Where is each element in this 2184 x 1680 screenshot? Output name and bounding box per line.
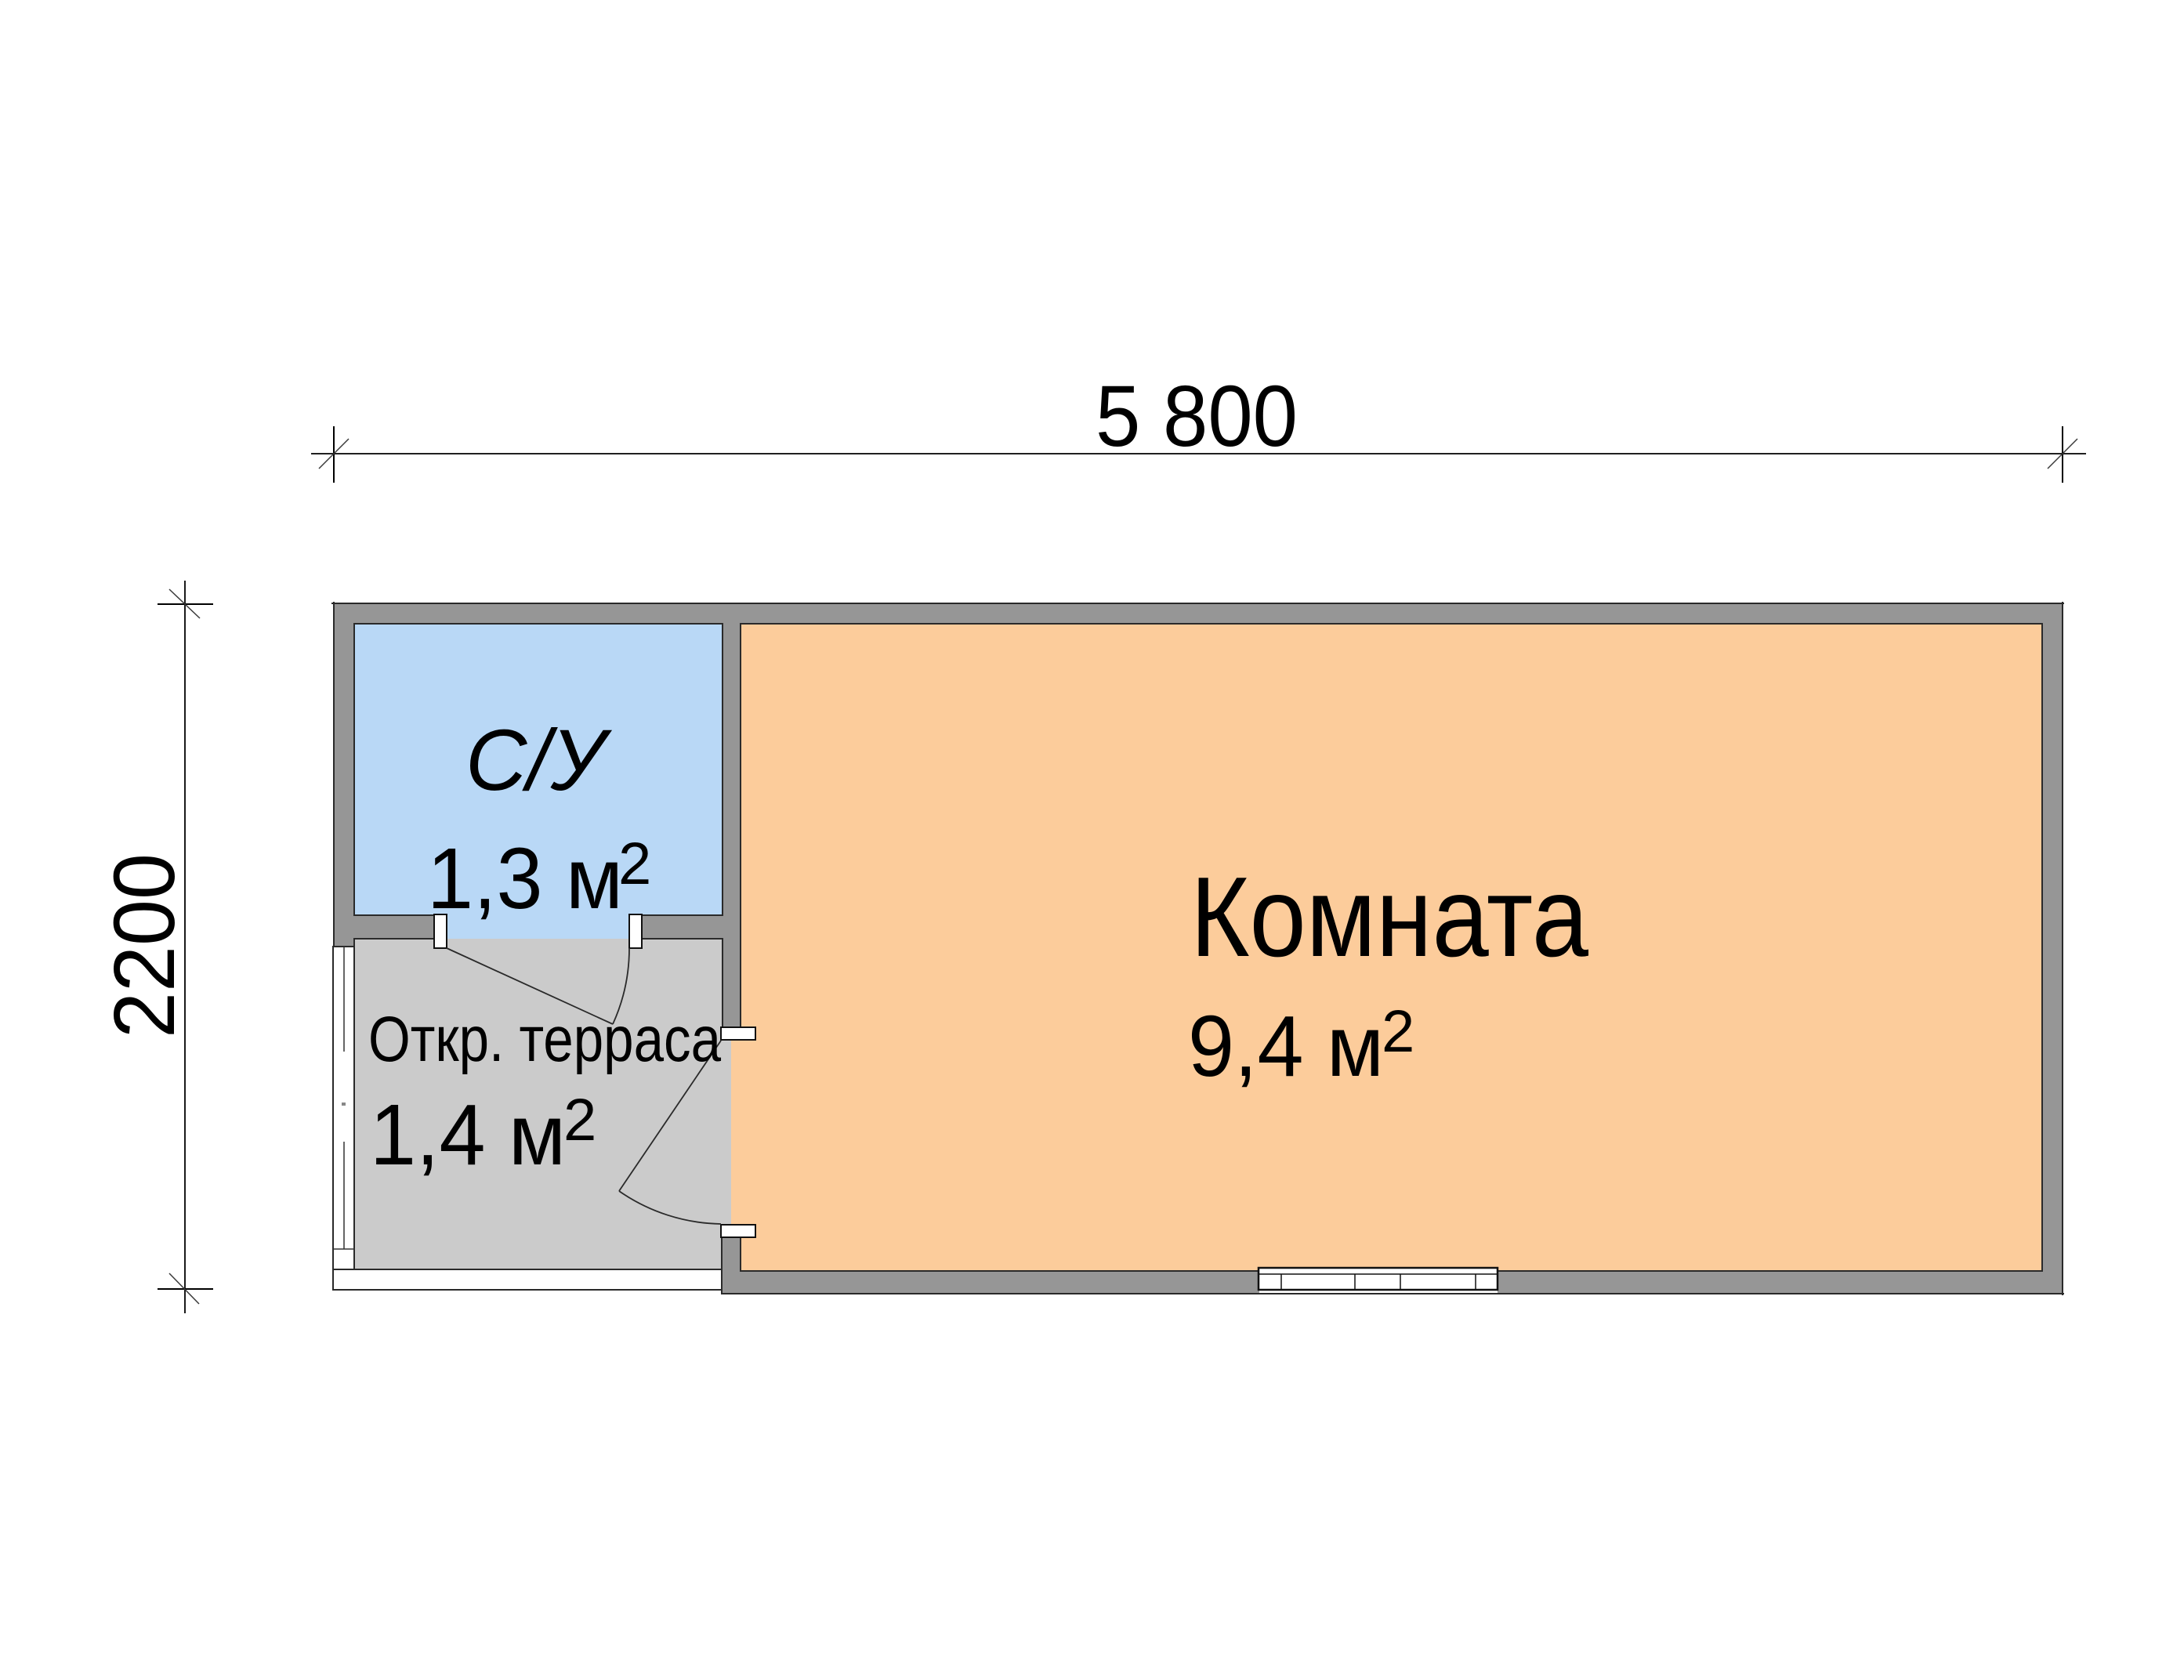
svg-text:2: 2 bbox=[563, 1087, 596, 1153]
svg-text:1,3 м: 1,3 м bbox=[427, 831, 623, 927]
svg-text:2: 2 bbox=[1382, 998, 1414, 1065]
svg-text:9,4 м: 9,4 м bbox=[1188, 998, 1384, 1095]
svg-text:Откр. терраса: Откр. терраса bbox=[368, 1004, 721, 1075]
svg-text:Комната: Комната bbox=[1190, 853, 1588, 980]
svg-text:2200: 2200 bbox=[96, 853, 193, 1038]
svg-text:2: 2 bbox=[618, 831, 651, 897]
svg-text:5 800: 5 800 bbox=[1096, 368, 1298, 465]
svg-text:С/У: С/У bbox=[465, 712, 613, 809]
svg-text:1,4 м: 1,4 м bbox=[370, 1087, 566, 1183]
